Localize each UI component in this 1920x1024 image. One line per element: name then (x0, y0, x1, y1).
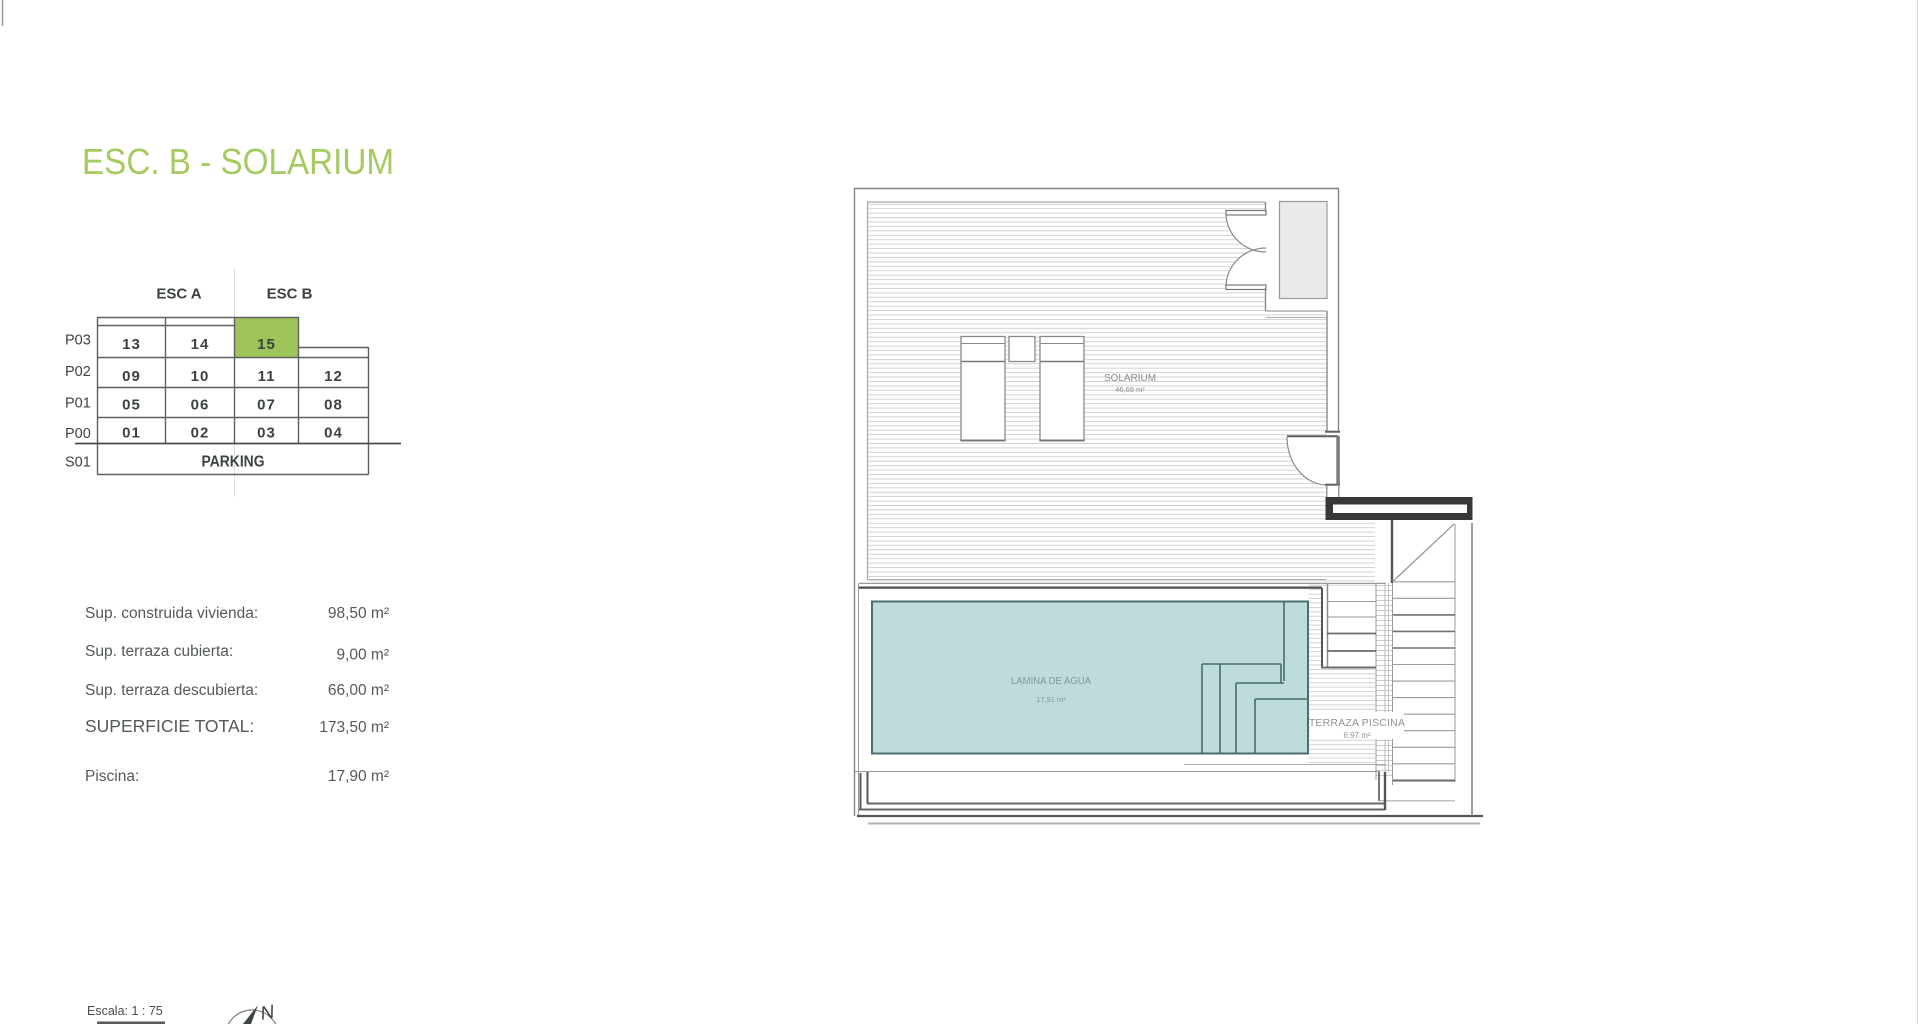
svg-text:TERRAZA PISCINA: TERRAZA PISCINA (1309, 717, 1405, 729)
svg-text:Sup. terraza descubierta:: Sup. terraza descubierta: (85, 682, 258, 699)
svg-text:06: 06 (191, 397, 210, 414)
svg-text:10: 10 (191, 368, 210, 385)
svg-text:P02: P02 (65, 364, 91, 380)
svg-text:ESC B: ESC B (267, 286, 313, 303)
svg-text:17,90 m²: 17,90 m² (328, 768, 389, 785)
svg-text:173,50 m²: 173,50 m² (319, 719, 389, 736)
svg-text:9,00 m²: 9,00 m² (336, 647, 389, 664)
svg-text:Piscina:: Piscina: (85, 768, 139, 785)
svg-text:15: 15 (257, 336, 276, 353)
svg-text:ESC A: ESC A (156, 286, 201, 303)
svg-text:11: 11 (258, 368, 276, 385)
svg-text:66,00 m²: 66,00 m² (328, 682, 389, 699)
svg-text:03: 03 (257, 425, 276, 442)
svg-text:05: 05 (122, 397, 141, 414)
svg-text:PARKING: PARKING (202, 454, 265, 471)
svg-text:09: 09 (122, 368, 141, 385)
svg-text:46,69 m²: 46,69 m² (1115, 385, 1145, 394)
svg-text:SUPERFICIE TOTAL:: SUPERFICIE TOTAL: (85, 716, 254, 736)
svg-text:N: N (259, 1002, 276, 1024)
svg-text:P01: P01 (65, 396, 91, 412)
svg-text:Sup. construida vivienda:: Sup. construida vivienda: (85, 605, 258, 622)
svg-text:14: 14 (191, 336, 210, 353)
svg-text:17,91 m²: 17,91 m² (1036, 695, 1066, 704)
svg-text:07: 07 (257, 397, 276, 414)
svg-text:LAMINA DE AGUA: LAMINA DE AGUA (1011, 675, 1091, 687)
svg-text:13: 13 (122, 336, 141, 353)
svg-text:6,97 m²: 6,97 m² (1343, 731, 1370, 740)
svg-text:01: 01 (122, 425, 141, 442)
svg-text:12: 12 (324, 368, 343, 385)
svg-text:Sup. terraza cubierta:: Sup. terraza cubierta: (85, 643, 233, 660)
svg-text:04: 04 (324, 425, 343, 442)
svg-text:P00: P00 (65, 426, 91, 442)
svg-text:P03: P03 (65, 333, 91, 349)
svg-text:S01: S01 (65, 455, 91, 471)
svg-text:08: 08 (324, 397, 343, 414)
svg-text:Escala: 1 : 75: Escala: 1 : 75 (87, 1004, 163, 1018)
svg-text:98,50 m²: 98,50 m² (328, 605, 389, 622)
svg-text:ESC. B - SOLARIUM: ESC. B - SOLARIUM (82, 141, 394, 182)
svg-text:02: 02 (191, 425, 210, 442)
svg-text:SOLARIUM: SOLARIUM (1104, 373, 1156, 384)
